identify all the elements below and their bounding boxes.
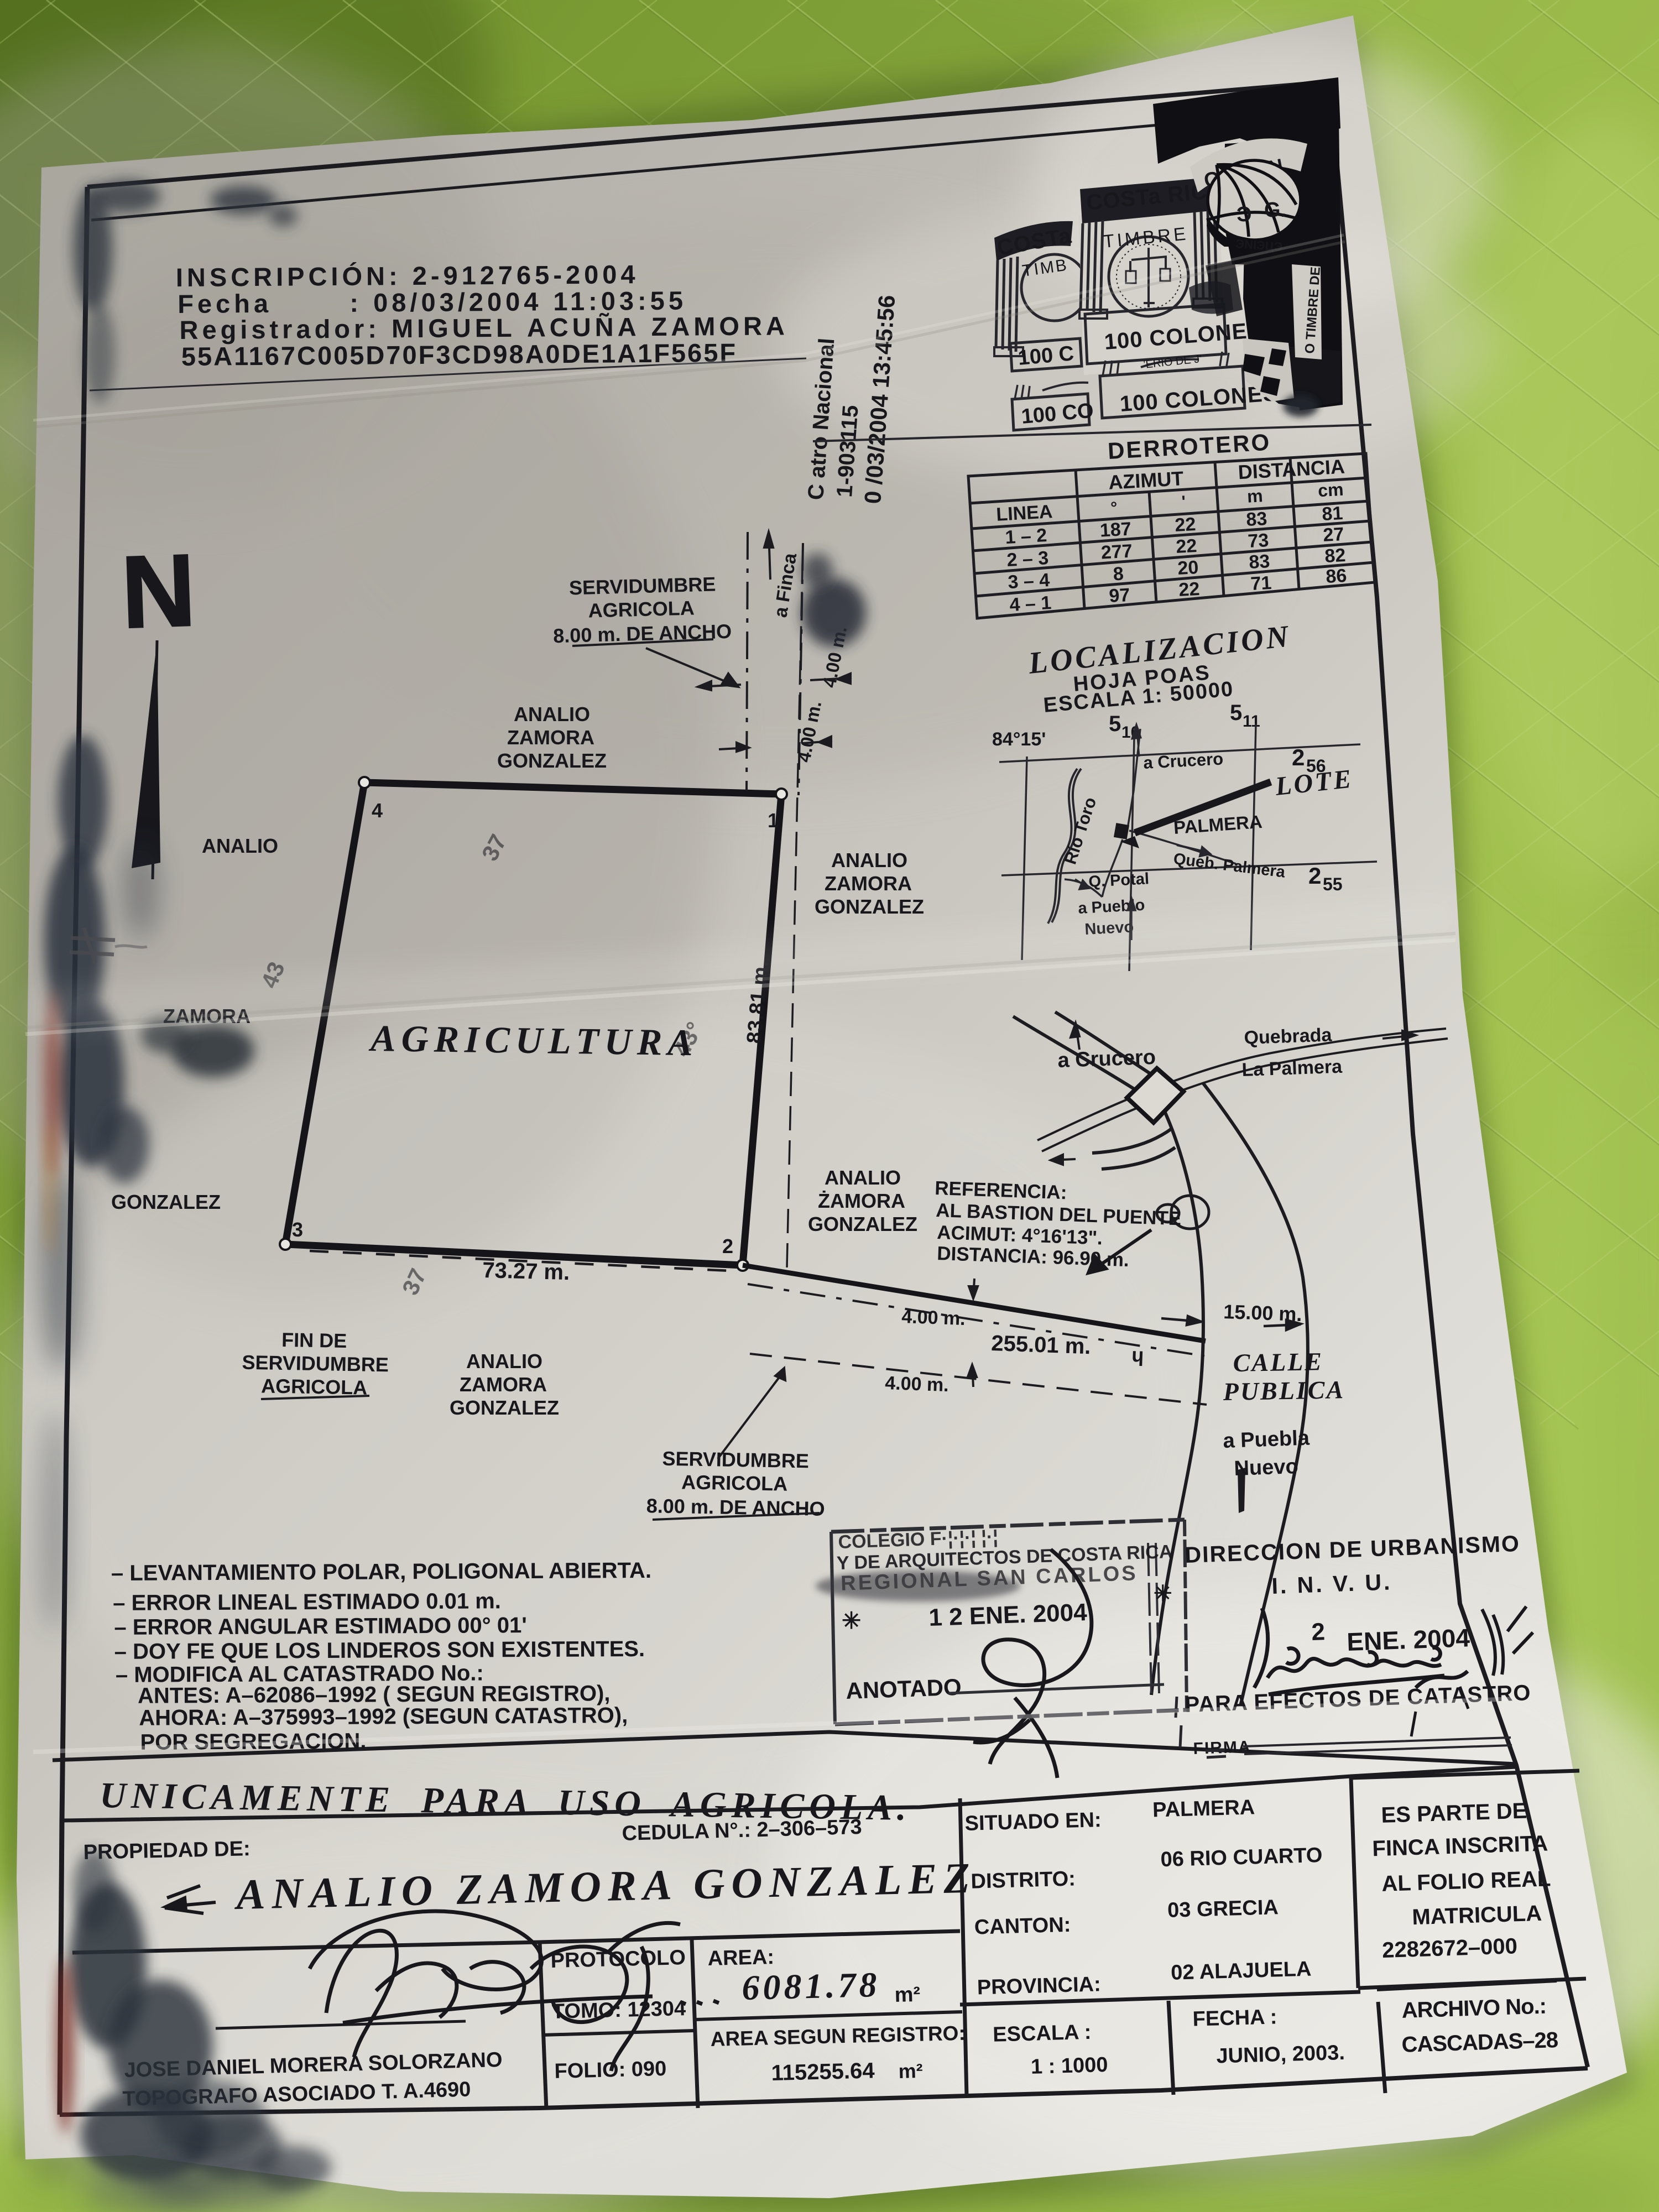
svg-text:115255.64: 115255.64 [771,2058,875,2085]
svg-text:Nuevo: Nuevo [1234,1455,1299,1480]
svg-text:✳: ✳ [1154,1582,1172,1606]
svg-text:71: 71 [1250,572,1272,594]
svg-text:Quebrada: Quebrada [1244,1024,1333,1048]
svg-text:1 – 2: 1 – 2 [1005,525,1048,548]
svg-text:03 GRECIA: 03 GRECIA [1167,1896,1279,1922]
svg-text:CANTON:: CANTON: [974,1913,1071,1939]
svg-text:G.: G. [1264,199,1286,222]
svg-text:8: 8 [1113,564,1124,585]
svg-text:73.27 m.: 73.27 m. [482,1258,570,1285]
svg-text:Ɔ: Ɔ [1237,203,1251,226]
svg-text:ŻAMORA: ŻAMORA [818,1190,905,1212]
svg-text:ɥ: ɥ [1131,1343,1144,1366]
svg-text:cm: cm [1317,479,1344,501]
svg-text:PROVINCIA:: PROVINCIA: [977,1973,1101,1999]
svg-text:2: 2 [1311,1618,1326,1646]
svg-text:– ERROR ANGULAR ESTIMADO 00° 0: – ERROR ANGULAR ESTIMADO 00° 01' [114,1613,527,1640]
svg-text:ANOTADO: ANOTADO [846,1674,962,1704]
svg-text:– ERROR LINEAL ESTIMADO 0.01 m: – ERROR LINEAL ESTIMADO 0.01 m. [113,1589,501,1615]
svg-text:PALMERA: PALMERA [1152,1796,1255,1822]
svg-text:6081.78: 6081.78 [742,1965,881,2007]
svg-text:20: 20 [1177,557,1199,579]
svg-text:ZAMORA: ZAMORA [460,1373,547,1396]
svg-text:FECHA :: FECHA : [1192,2005,1277,2031]
svg-text:La Palmera: La Palmera [1241,1056,1343,1081]
svg-text:ZAMORA: ZAMORA [825,872,912,895]
svg-text:3: 3 [292,1218,303,1241]
svg-text:SERVIDUMBRE: SERVIDUMBRE [568,573,716,599]
svg-text:a Crucero: a Crucero [1057,1046,1156,1072]
svg-text:1 2 ENE. 2004: 1 2 ENE. 2004 [928,1599,1088,1631]
svg-text:5: 5 [1230,701,1242,725]
svg-text:ANALIO: ANALIO [466,1350,542,1373]
svg-text:5: 5 [1109,712,1121,736]
svg-text:ZAMORA: ZAMORA [507,726,594,749]
svg-text:3 – 4: 3 – 4 [1008,570,1051,593]
svg-text:AGRICOLA: AGRICOLA [681,1470,788,1495]
svg-text:ANALIO: ANALIO [825,1166,901,1189]
svg-text:22: 22 [1174,514,1196,536]
svg-text:GONZALEZ: GONZALEZ [111,1191,221,1213]
svg-text:N: N [119,533,197,650]
svg-text:4.00 m.: 4.00 m. [885,1373,950,1396]
svg-text:GONZALEZ: GONZALEZ [815,895,924,918]
svg-text:277: 277 [1100,540,1133,563]
svg-text:FIN DE: FIN DE [281,1328,347,1352]
svg-text:83: 83 [1245,508,1267,530]
svg-text:MATRICULA: MATRICULA [1412,1901,1542,1929]
svg-text:AGRICULTURA: AGRICULTURA [368,1017,698,1063]
svg-text:97: 97 [1108,585,1130,607]
svg-text:22: 22 [1178,578,1200,601]
svg-text:GONZALEZ: GONZALEZ [497,749,607,772]
svg-text:FIRMA: FIRMA [1193,1738,1251,1758]
svg-text:AGRICOLA: AGRICOLA [588,596,695,622]
svg-text:m²: m² [898,2059,923,2083]
svg-text:– DOY FE QUE LOS LINDEROS SON: – DOY FE QUE LOS LINDEROS SON EXISTENTES… [114,1637,645,1664]
svg-text:187: 187 [1099,518,1132,541]
svg-text:✳: ✳ [842,1608,861,1634]
svg-text:22: 22 [1175,535,1197,557]
svg-text:ES PARTE DE: ES PARTE DE [1381,1799,1527,1828]
svg-text:4: 4 [372,799,383,822]
svg-text:JUNIO, 2003.: JUNIO, 2003. [1216,2041,1345,2068]
svg-text:GONZALEZ: GONZALEZ [450,1396,559,1419]
svg-text:55: 55 [1323,874,1343,894]
svg-text:m²: m² [894,1983,920,2007]
svg-text:AREA:: AREA: [707,1945,774,1970]
svg-text:11: 11 [1243,712,1260,731]
svg-text:4.00 m.: 4.00 m. [901,1306,966,1329]
svg-text:255.01 m.: 255.01 m. [991,1331,1092,1359]
svg-text:PUBLICA: PUBLICA [1222,1375,1345,1406]
svg-text:1: 1 [768,809,779,832]
svg-text:LINEA: LINEA [995,501,1053,525]
svg-text:SERVIDUMBRE: SERVIDUMBRE [242,1351,389,1376]
svg-text:DISTRITO:: DISTRITO: [971,1867,1076,1893]
svg-text:– LEVANTAMIENTO POLAR, POLIGON: – LEVANTAMIENTO POLAR, POLIGONAL ABIERTA… [111,1558,651,1585]
svg-text:4 – 1: 4 – 1 [1009,592,1052,615]
svg-text:2 – 3: 2 – 3 [1006,547,1050,571]
svg-text:I. N. V. U.: I. N. V. U. [1271,1569,1392,1599]
svg-text:ARCHIVO No.:: ARCHIVO No.: [1401,1994,1547,2023]
svg-text:02 ALAJUELA: 02 ALAJUELA [1171,1958,1312,1985]
svg-text:SERVIDUMBRE: SERVIDUMBRE [662,1447,809,1473]
svg-text:06 RIO CUARTO: 06 RIO CUARTO [1160,1844,1323,1871]
svg-text:27: 27 [1322,524,1344,546]
svg-text:ANALIO: ANALIO [831,849,907,872]
svg-text:AHORA: A–375993–1992 (SEGUN CA: AHORA: A–375993–1992 (SEGUN CATASTRO), [139,1703,628,1730]
svg-text:ANALIO: ANALIO [202,834,278,857]
svg-text:1 : 1000: 1 : 1000 [1030,2053,1108,2079]
svg-text:100 C: 100 C [1017,342,1075,370]
svg-text:2: 2 [722,1235,733,1258]
svg-text:m: m [1246,486,1263,507]
svg-text:Q. Potal: Q. Potal [1088,870,1150,891]
svg-text:SITUADO EN:: SITUADO EN: [964,1808,1102,1835]
svg-text:81: 81 [1321,503,1343,525]
svg-text:82: 82 [1324,545,1346,567]
svg-text:°: ° [1110,499,1118,518]
svg-text:83: 83 [1248,551,1270,573]
svg-text:86: 86 [1325,565,1347,587]
svg-text:2: 2 [1308,863,1321,889]
svg-text:a Puebla: a Puebla [1223,1427,1311,1453]
svg-text:ESCALA :: ESCALA : [993,2021,1092,2047]
svg-text:CASCADAS–28: CASCADAS–28 [1401,2028,1558,2057]
svg-text:2282672–000: 2282672–000 [1382,1934,1518,1963]
svg-text:PROPIEDAD DE:: PROPIEDAD DE: [83,1837,251,1864]
svg-text:CALLE: CALLE [1233,1347,1323,1377]
svg-text:AZIMUT: AZIMUT [1108,467,1184,494]
svg-text:73: 73 [1247,530,1269,552]
svg-text:ANALIO: ANALIO [514,703,590,726]
svg-text:ENE. 2004: ENE. 2004 [1347,1623,1471,1656]
svg-text:GONZALEZ: GONZALEZ [808,1213,917,1235]
svg-text:84°15': 84°15' [992,729,1046,750]
